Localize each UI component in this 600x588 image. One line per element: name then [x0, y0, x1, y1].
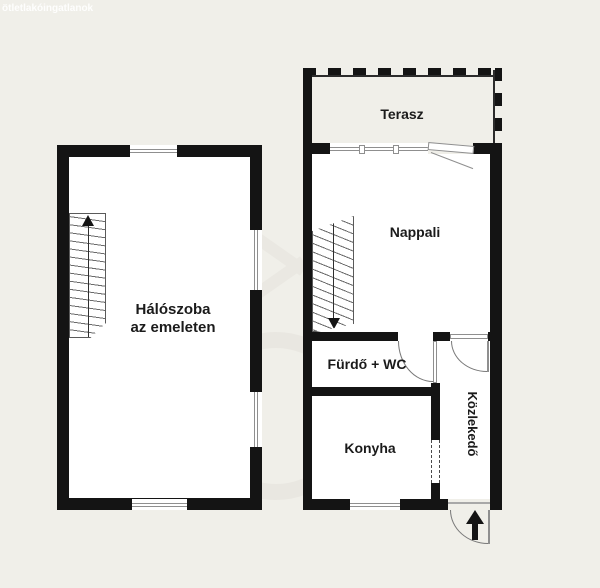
stairs-up-arrow-icon: [82, 215, 94, 226]
entrance-door-head: [448, 502, 490, 504]
kitchen-label: Konyha: [310, 440, 430, 457]
window-glass: [350, 503, 400, 507]
window-glass: [330, 147, 428, 151]
entrance-arrow-icon: [466, 510, 484, 524]
window-glass: [132, 503, 187, 507]
bedroom-window-right-lower: [250, 392, 262, 447]
living-north-wall-right-seg: [473, 143, 502, 154]
stair-walkline: [88, 224, 89, 337]
living-room-label: Nappali: [360, 224, 470, 241]
floor-plan: ötletlakóingatlanok Hálószoba az emelete…: [0, 0, 600, 588]
bathroom-door-leaf: [433, 341, 437, 383]
hall-north-wall-corner: [488, 332, 502, 341]
hall-door-leaf-closed: [450, 334, 488, 339]
kitchen-window: [350, 499, 400, 510]
living-window-to-terrace: [330, 143, 428, 154]
kitchen-hall-wall-lower: [431, 483, 440, 500]
entrance-door-leaf: [488, 510, 490, 544]
window-mullion: [359, 145, 365, 154]
bedroom-window-bottom: [132, 499, 187, 510]
hall-north-wall-seg: [433, 332, 450, 341]
south-wall-mid-seg: [400, 499, 448, 510]
bedroom-label-line2: az emeleten: [97, 319, 249, 337]
terrace-dashed-wall-top: [303, 68, 502, 75]
staircase-living: [312, 216, 354, 332]
terrace-wall-line-right: [493, 70, 495, 145]
window-mullion: [393, 145, 399, 154]
kitchen-north-wall: [303, 387, 440, 396]
kitchen-hall-wall-upper: [431, 383, 440, 440]
terrace-label: Terasz: [312, 106, 492, 123]
window-glass: [254, 392, 258, 447]
site-watermark-text: ötletlakóingatlanok: [2, 3, 93, 14]
terrace-wall-line-top: [303, 75, 502, 77]
bathroom-label: Fürdő + WC: [306, 356, 428, 373]
window-glass: [254, 230, 258, 290]
hall-door-leaf-open: [487, 341, 489, 372]
bedroom-window-top: [130, 145, 177, 157]
living-north-wall-left-seg: [303, 143, 330, 154]
south-wall-corner: [490, 499, 502, 510]
kitchen-hall-dashed-opening: [431, 440, 440, 483]
bedroom-window-right-upper: [250, 230, 262, 290]
living-unit-wall-right: [490, 143, 502, 510]
entrance-arrow-stem: [472, 523, 478, 540]
hallway-label: Közlekedő: [460, 369, 480, 479]
terrace-dashed-wall-right: [495, 68, 502, 145]
terrace-door-leaf: [428, 142, 475, 154]
bath-north-wall: [303, 332, 398, 341]
bedroom-label: Hálószoba az emeleten: [97, 301, 249, 337]
bedroom-label-line1: Hálószoba: [97, 301, 249, 319]
south-wall-left-seg: [303, 499, 350, 510]
stair-walkline: [333, 223, 334, 321]
window-glass: [130, 149, 177, 153]
